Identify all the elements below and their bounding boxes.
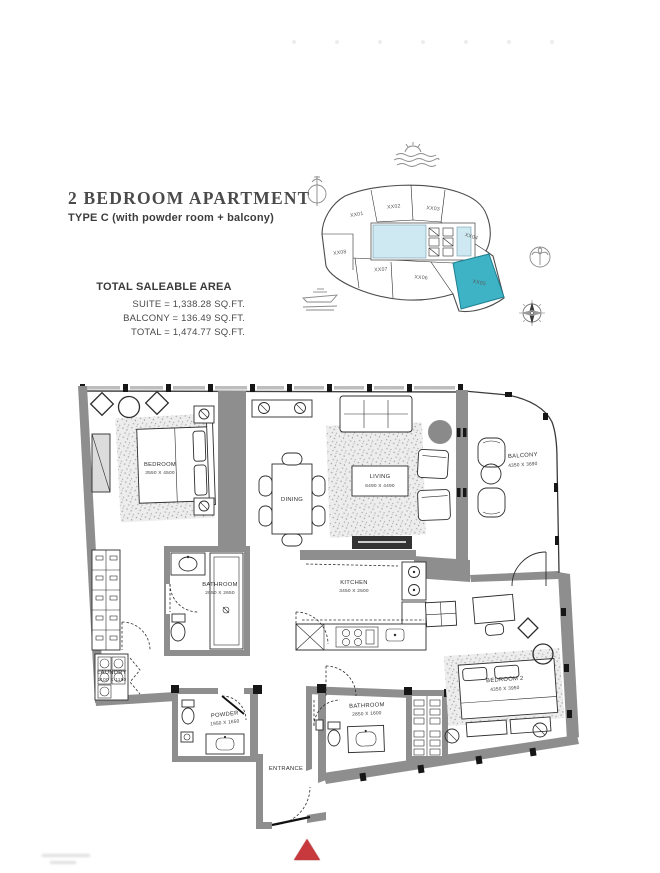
laundry-room	[95, 654, 140, 700]
bed	[458, 659, 559, 738]
living-area	[326, 396, 452, 696]
entrance-door-leaf	[272, 817, 310, 825]
floor-plan: BEDROOM 3550 X 4500 DINING LIVING 6490 X…	[60, 370, 600, 840]
oven-tower	[402, 562, 426, 600]
room-label-dining: DINING	[281, 497, 303, 503]
vanity	[206, 734, 244, 754]
key-plan-building: XX01 XX02 XX03 XX04 XX08 XX07 XX06 XX05	[322, 185, 504, 311]
area-row-suite: SUITE = 1,338.28 SQ.FT.	[83, 298, 245, 312]
room-dims-laundry: 1100 X 1150	[98, 677, 127, 683]
console-table	[252, 400, 312, 417]
balcony-chairs	[478, 438, 505, 517]
fridge	[425, 601, 456, 627]
room-dims-bathroom1: 2050 X 2650	[205, 590, 235, 596]
balcony	[478, 438, 546, 586]
print-dot-row	[292, 40, 554, 44]
unit-label: XX07	[374, 267, 388, 274]
room-label-entrance: ENTRANCE	[269, 766, 303, 772]
print-smudge	[38, 852, 100, 868]
sofa	[340, 396, 412, 432]
master-bedroom	[91, 392, 216, 523]
toilet	[328, 722, 340, 746]
desk-and-chair	[473, 594, 516, 636]
entrance-marker-triangle	[294, 839, 320, 860]
room-dims-living: 6490 X 4490	[365, 483, 395, 489]
saleable-area-table: TOTAL SALEABLE AREA SUITE = 1,338.28 SQ.…	[83, 281, 245, 340]
brochure-page: 2 BEDROOM APARTMENT TYPE C (with powder …	[0, 0, 660, 873]
sea-waves-icon	[394, 142, 439, 167]
wardrobe-unit	[92, 434, 110, 492]
room-label-bathroom1: BATHROOM	[202, 582, 237, 588]
area-row-total: TOTAL = 1,474.77 SQ.FT.	[83, 326, 245, 340]
water-heater	[316, 720, 323, 730]
living-label-box	[352, 466, 408, 496]
toilet	[171, 614, 185, 641]
room-label-bathroom2: BATHROOM	[349, 702, 385, 710]
walk-in-wardrobe	[92, 550, 150, 650]
vanity	[348, 725, 385, 752]
toilet	[182, 700, 194, 724]
room-dims-balcony: 4350 X 3690	[508, 461, 538, 469]
shower	[210, 553, 243, 649]
room-label-bedroom: BEDROOM	[144, 462, 176, 468]
room-label-kitchen: KITCHEN	[340, 580, 368, 586]
area-row-balcony: BALCONY = 136.49 SQ.FT.	[83, 312, 245, 326]
dining-area	[252, 400, 325, 546]
room-label-laundry: LAUNDRY	[97, 670, 127, 676]
tv-unit	[352, 536, 412, 549]
palm-tree-icon	[530, 247, 550, 267]
ceiling-decor	[91, 392, 169, 418]
compass-icon	[519, 300, 545, 326]
page-title: 2 BEDROOM APARTMENT	[68, 188, 311, 209]
room-label-balcony: BALCONY	[508, 452, 538, 460]
antenna-icon	[308, 176, 326, 206]
vanity-sink	[171, 553, 205, 575]
side-table-dark	[428, 420, 452, 444]
area-table-heading: TOTAL SALEABLE AREA	[83, 281, 245, 293]
room-dims-bedroom: 3550 X 4500	[145, 470, 175, 476]
kitchen-counter	[296, 624, 426, 650]
key-plan: XX01 XX02 XX03 XX04 XX08 XX07 XX06 XX05	[293, 130, 563, 335]
small-basin	[181, 732, 193, 742]
room-label-living: LIVING	[370, 474, 391, 480]
key-plan-core	[371, 223, 475, 260]
unit-label: XX06	[414, 274, 428, 281]
room-dims-kitchen: 3450 X 2500	[339, 588, 369, 594]
entrance	[272, 787, 310, 825]
yacht-icon	[303, 289, 337, 310]
room-dims-bathroom2: 2850 X 1600	[352, 710, 382, 718]
page-subtitle: TYPE C (with powder room + balcony)	[68, 212, 274, 224]
